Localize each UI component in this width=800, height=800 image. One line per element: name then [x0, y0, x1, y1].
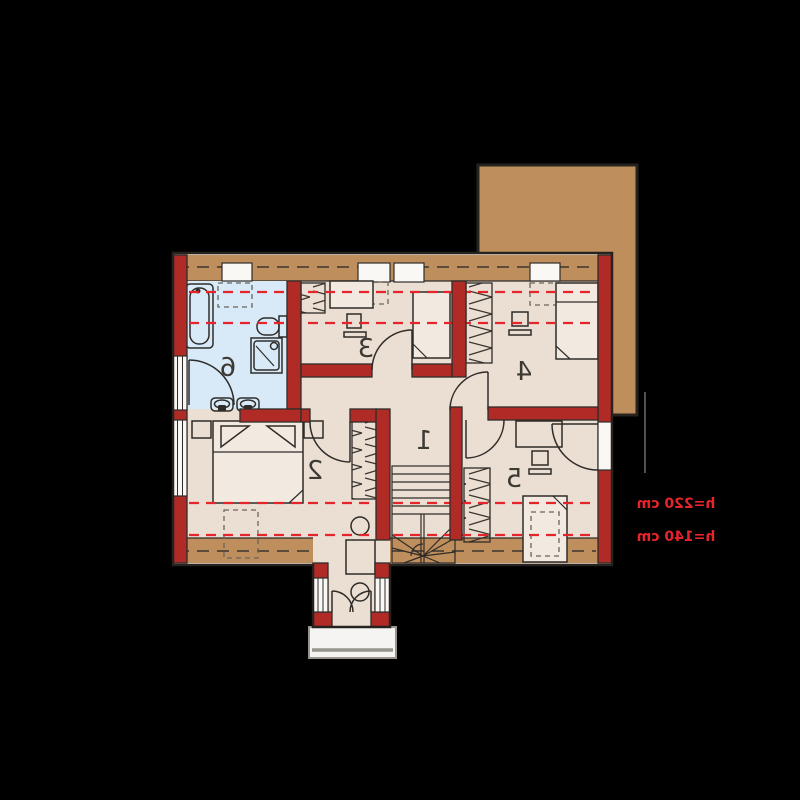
- svg-text:5: 5: [506, 464, 523, 494]
- room-label-6: 6: [220, 353, 237, 383]
- doorway-roof-terrace: [598, 422, 612, 470]
- svg-text:3: 3: [358, 334, 375, 364]
- wall-bedroom2-hall: [376, 409, 390, 540]
- recess-room3-right: [394, 263, 424, 282]
- svg-text:2: 2: [307, 456, 324, 486]
- balcony-slab: [309, 627, 396, 658]
- bathroom-area: [187, 281, 301, 409]
- wardrobe-room5: [464, 468, 490, 542]
- recess-room3-left: [358, 263, 390, 282]
- svg-text:6: 6: [220, 353, 237, 383]
- bed-room3: [413, 292, 450, 358]
- wall-bedroom2-top-left: [301, 409, 310, 422]
- svg-text:h=140 cm: h=140 cm: [637, 529, 716, 545]
- wall-right: [598, 255, 612, 563]
- svg-text:4: 4: [516, 357, 533, 387]
- wall-room3-bottom-left: [301, 364, 372, 377]
- wall-room3-room4: [452, 281, 466, 377]
- window-porch-right: [375, 578, 390, 612]
- annotation-h220: h=220 cm: [637, 496, 716, 512]
- window-left-bathroom: [173, 356, 187, 410]
- room-label-4: 4: [516, 357, 533, 387]
- height-annotations: h=220 cm h=140 cm: [637, 496, 716, 545]
- wardrobe-bedroom2: [352, 421, 376, 499]
- window-left-bedroom2: [173, 420, 187, 496]
- room-label-5: 5: [506, 464, 523, 494]
- svg-text:h=220 cm: h=220 cm: [637, 496, 716, 512]
- annotation-h140: h=140 cm: [637, 529, 716, 545]
- wall-porch-stub-left: [313, 612, 332, 627]
- floor-plan-svg: 1 2 3 4 5 6 h=220 cm h=140 cm: [0, 0, 800, 800]
- wall-bedroom2-top-right: [350, 409, 376, 422]
- wall-bathroom-right: [287, 281, 301, 409]
- wall-room3-bottom-right: [412, 364, 452, 377]
- washbasin-left-tap-icon: [218, 405, 226, 411]
- room-label-2: 2: [307, 456, 324, 486]
- recess-room4: [530, 263, 560, 281]
- room-label-3: 3: [358, 334, 375, 364]
- bed-room4: [556, 283, 598, 359]
- room-label-1: 1: [416, 426, 433, 456]
- window-porch-left: [313, 578, 328, 612]
- floor-plan-canvas: 1 2 3 4 5 6 h=220 cm h=140 cm: [0, 0, 800, 800]
- wardrobe-room3: [301, 283, 325, 313]
- bed-room5: [523, 496, 567, 562]
- wall-bathroom-bottom: [240, 409, 301, 422]
- wall-porch-stub-right: [371, 612, 390, 627]
- wall-room4-room5: [488, 407, 598, 420]
- svg-text:1: 1: [416, 426, 433, 456]
- recess-bathroom: [222, 263, 252, 281]
- double-bed: [213, 421, 303, 503]
- wall-stairs-room5: [450, 407, 462, 540]
- dresser-room3: [330, 281, 373, 308]
- balcony: [309, 627, 396, 658]
